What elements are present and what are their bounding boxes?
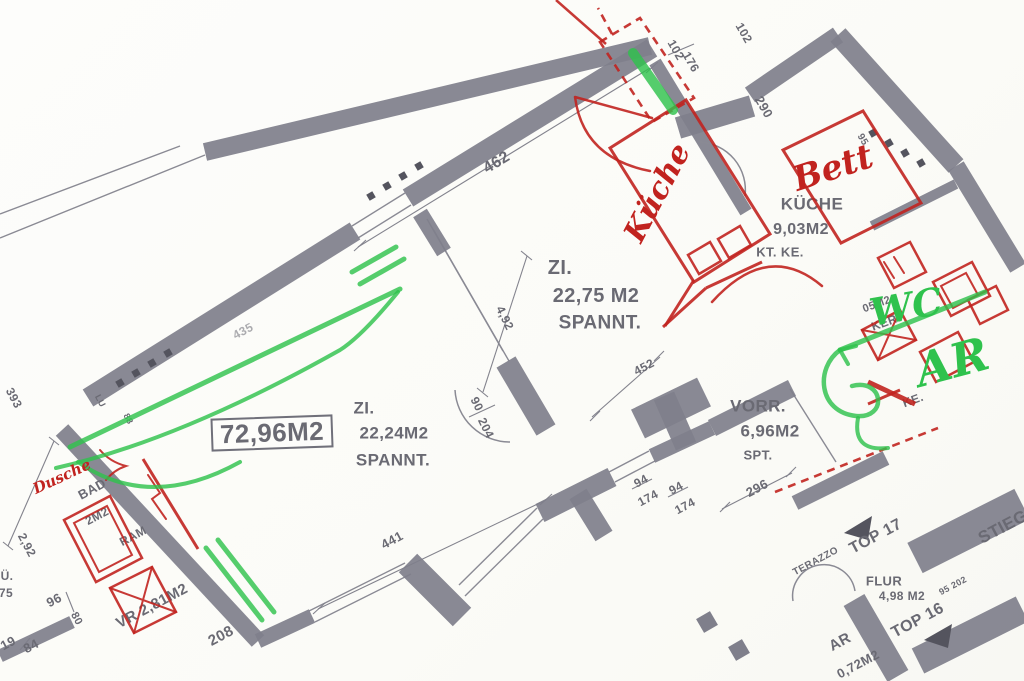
plan-annotations-drawing (0, 0, 1024, 681)
red-pen-annotations-layer (64, 0, 1008, 633)
green-marker-annotations-layer (56, 53, 985, 620)
floor-plan-scan: ZI.22,75 M2SPANNT.ZI.22,24M2SPANNT.72,96… (0, 0, 1024, 681)
